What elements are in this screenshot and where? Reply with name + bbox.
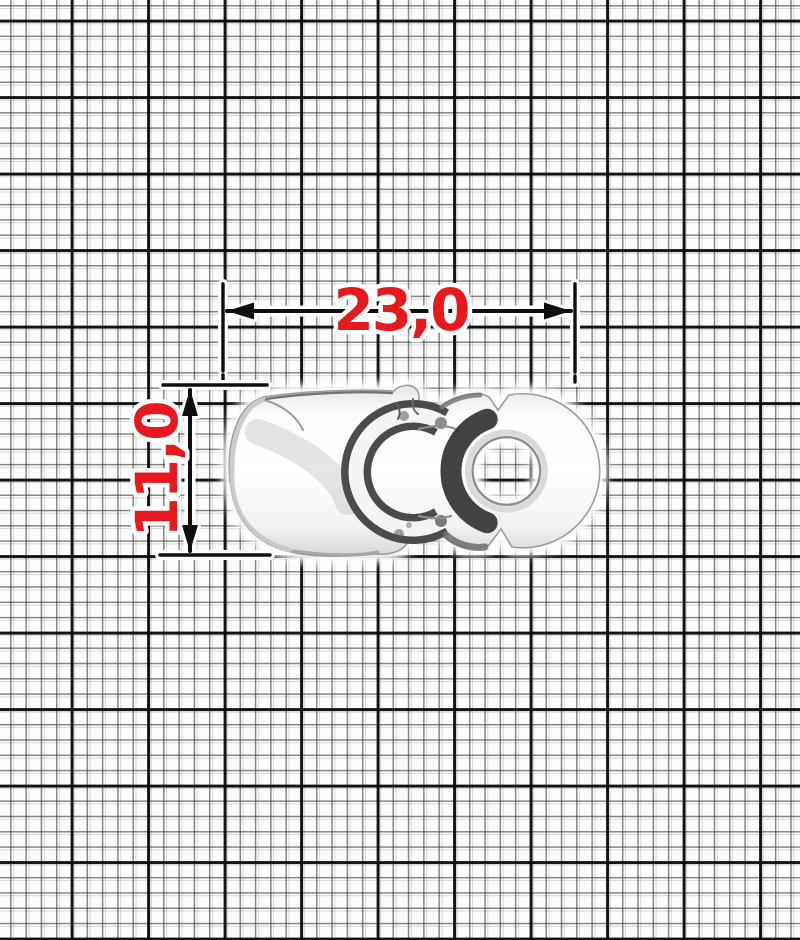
measurement-photo: 23,0 11,0 <box>0 0 800 940</box>
width-dimension-label: 23,0 <box>333 276 468 344</box>
width-dimension: 23,0 <box>223 276 575 382</box>
clasp-photo <box>229 385 600 556</box>
dimension-drawing: 23,0 11,0 <box>0 0 800 940</box>
height-dimension-label: 11,0 <box>123 402 191 537</box>
